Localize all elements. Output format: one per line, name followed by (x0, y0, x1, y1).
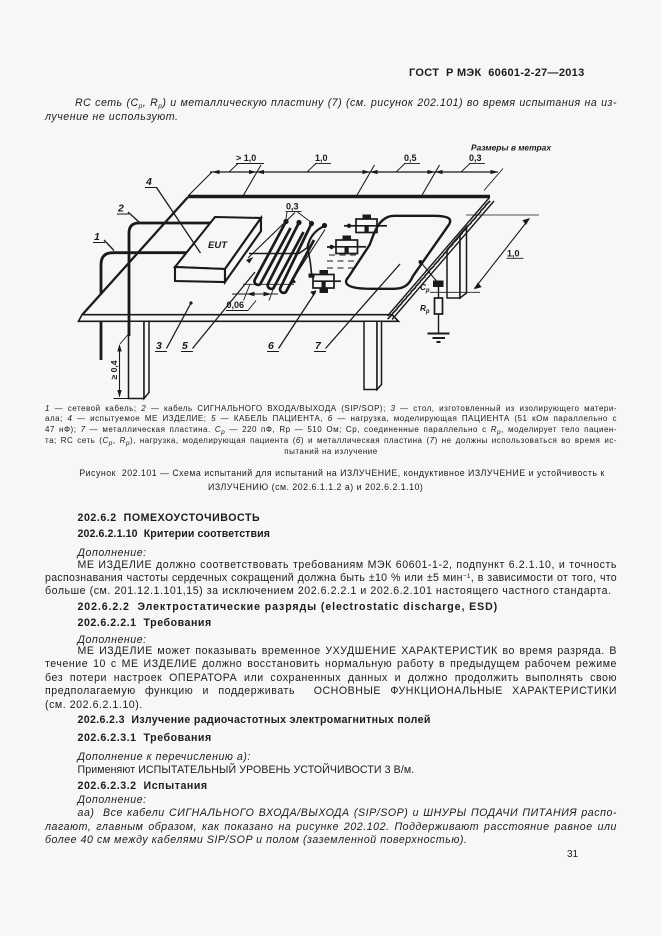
svg-text:5: 5 (182, 340, 188, 352)
svg-text:0,3: 0,3 (469, 153, 482, 163)
svg-text:6: 6 (268, 340, 274, 352)
svg-text:0,5: 0,5 (404, 153, 417, 163)
svg-text:≥ 0,4: ≥ 0,4 (109, 360, 119, 379)
svg-text:1: 1 (94, 231, 100, 243)
svg-text:3: 3 (156, 340, 162, 352)
svg-text:> 1,0: > 1,0 (236, 153, 256, 163)
svg-text:1,0: 1,0 (315, 153, 328, 163)
svg-text:Размеры в метрах: Размеры в метрах (471, 143, 551, 153)
svg-text:0,3: 0,3 (286, 202, 299, 212)
svg-text:4: 4 (145, 176, 152, 188)
svg-text:0,06: 0,06 (227, 300, 245, 310)
svg-text:1,0: 1,0 (507, 249, 520, 259)
svg-text:7: 7 (315, 340, 322, 352)
svg-text:2: 2 (117, 203, 124, 215)
svg-text:Rp: Rp (420, 304, 430, 315)
svg-text:EUT: EUT (208, 240, 228, 251)
svg-text:Cp: Cp (420, 283, 430, 294)
